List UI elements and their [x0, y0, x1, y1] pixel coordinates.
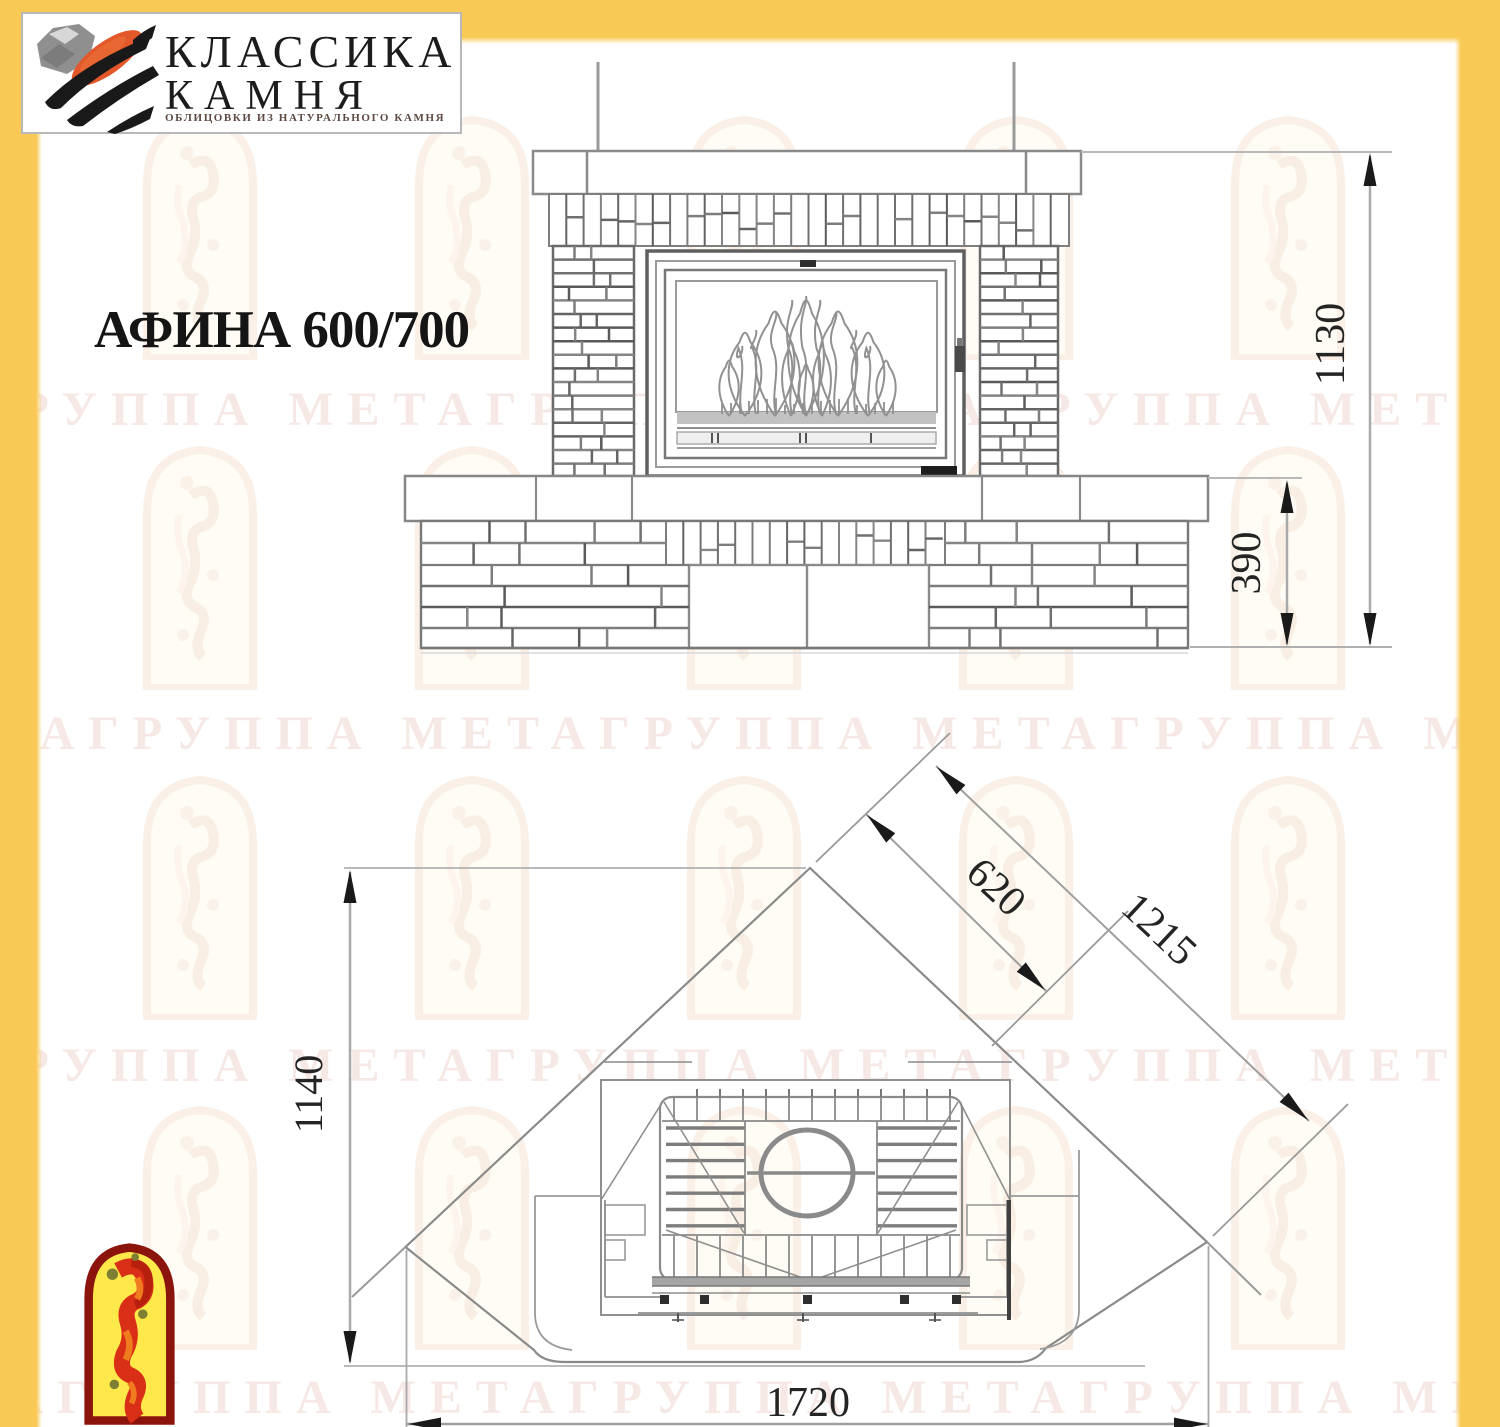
- svg-text:1720: 1720: [766, 1380, 850, 1426]
- svg-text:1140: 1140: [286, 1055, 331, 1134]
- svg-text:390: 390: [1224, 532, 1270, 595]
- svg-text:1130: 1130: [1308, 303, 1354, 385]
- svg-text:1215: 1215: [1112, 884, 1205, 975]
